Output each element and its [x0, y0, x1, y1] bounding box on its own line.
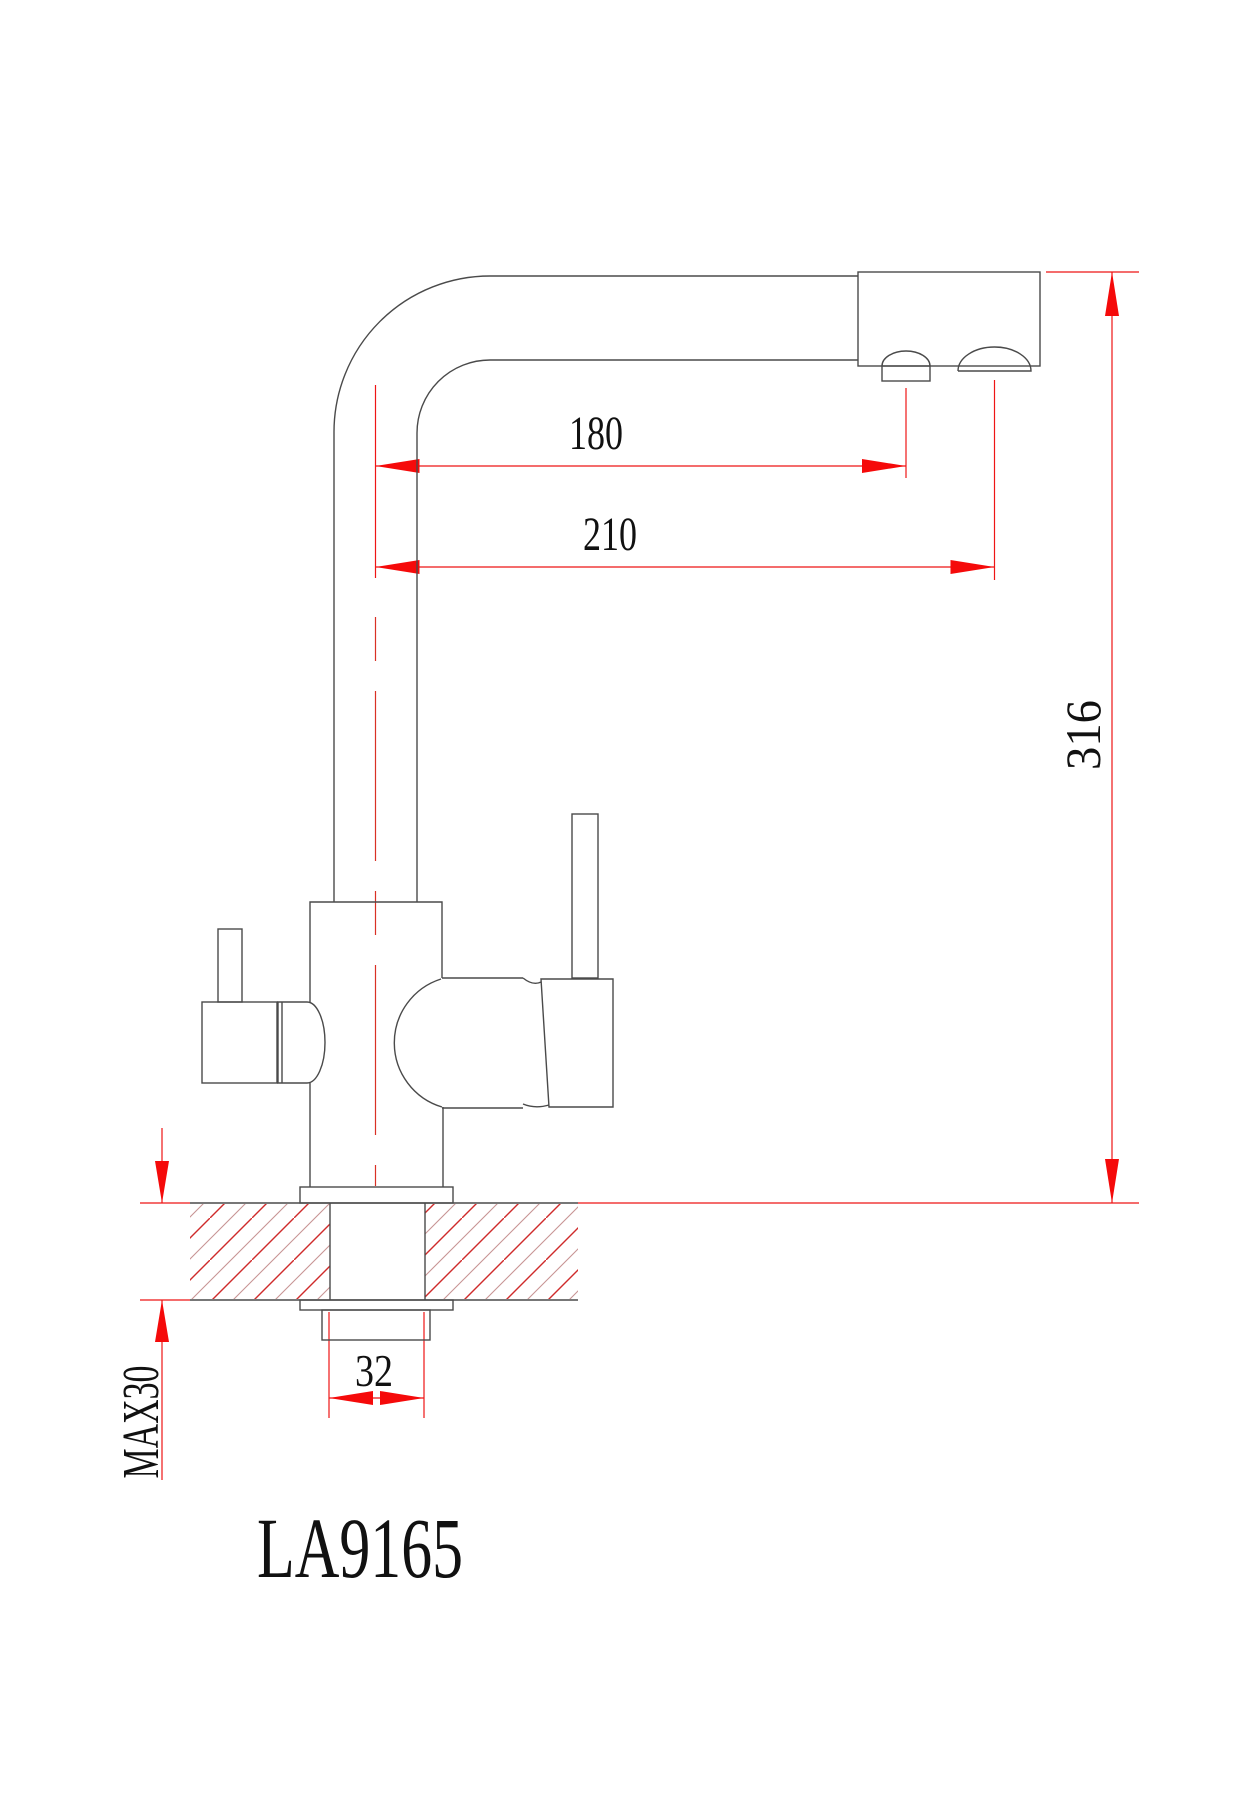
left-handle-lever	[218, 929, 242, 1002]
dim-316-arrow-down	[1105, 1159, 1119, 1203]
dim-32-label: 32	[355, 1345, 393, 1396]
right-seam-arc-bottom	[523, 1104, 549, 1107]
model-number-label: LA9165	[257, 1500, 463, 1596]
dim-180-arrow-right	[862, 459, 906, 473]
spout-inner-contour	[417, 360, 858, 902]
dim-210-label: 210	[583, 508, 637, 561]
left-handle-seam	[278, 1002, 282, 1083]
dim-max30-arrow-down	[155, 1161, 169, 1203]
faucet-technical-drawing: 180 210 316 MAX30 32 LA9165	[0, 0, 1255, 1800]
left-handle-body	[202, 1002, 277, 1083]
dim-316-label: 316	[1055, 700, 1111, 770]
mounting-nut	[322, 1310, 430, 1340]
left-handle-cap	[277, 1002, 325, 1083]
dim-210-arrow-right	[951, 560, 995, 574]
countertop-hatch-left	[190, 1204, 330, 1299]
dimension-180	[376, 459, 907, 473]
spout-head	[858, 272, 1040, 366]
filtered-outlet-collar	[882, 366, 930, 381]
dimension-210	[376, 560, 995, 574]
dim-210-arrow-left	[376, 560, 420, 574]
right-ball-joint	[394, 979, 442, 1107]
dim-316-arrow-up	[1105, 272, 1119, 316]
drawing-sheet: 180 210 316 MAX30 32 LA9165	[0, 0, 1255, 1800]
dim-180-arrow-left	[376, 459, 420, 473]
mounting-shank	[330, 1203, 425, 1300]
base-flange	[300, 1187, 453, 1203]
dim-180-label: 180	[569, 407, 623, 460]
mounting-washer	[300, 1300, 453, 1310]
spout-outer-contour	[334, 276, 858, 902]
dimension-layer	[140, 272, 1139, 1480]
filtered-outlet-dome	[882, 351, 930, 366]
dim-max30-arrow-up	[155, 1300, 169, 1342]
dim-max30-label: MAX30	[113, 1366, 170, 1479]
right-seam-arc-top	[523, 978, 541, 983]
main-aerator-dome	[958, 347, 1031, 371]
right-handle-cap	[541, 979, 613, 1107]
countertop-hatch-right	[425, 1204, 578, 1299]
right-handle-lever	[572, 814, 598, 978]
